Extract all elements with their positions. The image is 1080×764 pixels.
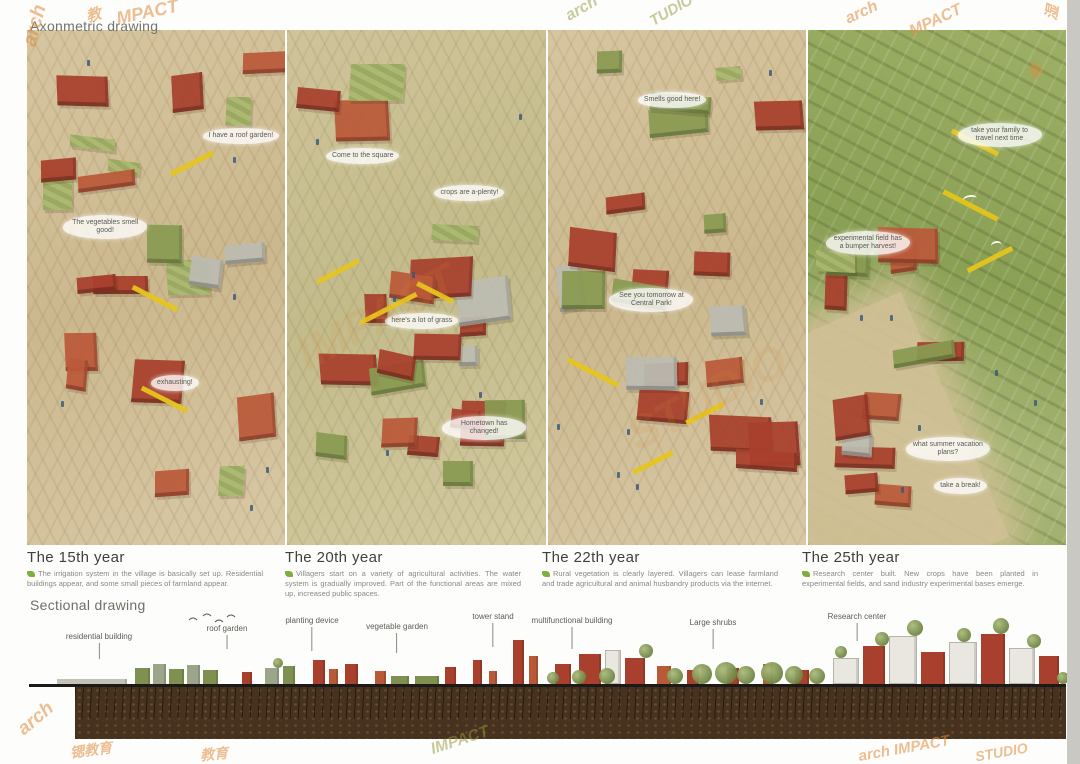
villager-figure	[557, 424, 560, 430]
section-label: tower stand	[472, 612, 513, 647]
panel-year-20: Come to the squarecrops are a-plenty!her…	[285, 30, 545, 545]
art-building-block	[188, 256, 223, 289]
section-tree	[785, 666, 803, 684]
section-building	[489, 671, 497, 684]
watermark-text: STUDIO	[974, 740, 1029, 764]
section-tree	[715, 662, 737, 684]
speech-bubble: exhausting!	[151, 375, 199, 391]
section-building	[169, 669, 184, 684]
section-building	[473, 660, 482, 684]
section-label: Research center	[828, 612, 887, 641]
watermark-text: arch	[843, 0, 881, 28]
art-building-block	[243, 51, 285, 74]
watermark-text: TUDIO	[647, 0, 696, 30]
section-tree	[599, 668, 615, 684]
villager-figure	[479, 392, 482, 398]
speech-bubble: experimental field has a bumper harvest!	[826, 231, 910, 255]
panel-year-22: Smells good here!See you tomorrow at Cen…	[546, 30, 806, 545]
caption-year-22-body: Rural vegetation is clearly layered. Vil…	[542, 569, 778, 589]
villager-figure	[860, 315, 863, 321]
section-label-text: tower stand	[472, 612, 513, 621]
art-building-block	[218, 466, 245, 496]
villager-figure	[995, 370, 998, 376]
panel-year-25-artwork	[808, 30, 1066, 545]
art-building-block	[561, 271, 605, 309]
caption-year-25: The 25th year Research center built. New…	[802, 549, 1038, 589]
speech-bubble: I have a roof garden!	[203, 128, 280, 144]
caption-year-20-body: Villagers start on a variety of agricult…	[285, 569, 521, 599]
section-tree	[572, 670, 586, 684]
caption-year-15-text: The irrigation system in the village is …	[27, 569, 263, 588]
villager-figure	[890, 315, 893, 321]
section-tree	[273, 658, 283, 668]
art-building-block	[892, 339, 955, 368]
art-building-block	[316, 433, 348, 461]
label-leader-line	[856, 623, 857, 641]
villager-figure	[87, 60, 90, 66]
section-tree	[1027, 634, 1041, 648]
section-label-text: vegetable garden	[366, 622, 428, 631]
art-building-block	[65, 357, 87, 391]
caption-year-25-body: Research center built. New crops have be…	[802, 569, 1038, 589]
leaf-icon	[802, 571, 810, 577]
section-tree	[993, 618, 1009, 634]
section-building	[283, 666, 295, 684]
caption-year-22: The 22th year Rural vegetation is clearl…	[542, 549, 778, 589]
section-building	[329, 669, 338, 684]
speech-bubble: See you tomorrow at Central Park!	[609, 288, 693, 312]
section-label: multifunctional building	[532, 616, 613, 649]
presentation-board: Axonmetric drawing I have a roof garden!…	[0, 0, 1080, 764]
caption-year-15-body: The irrigation system in the village is …	[27, 569, 263, 589]
caption-year-25-text: Research center built. New crops have be…	[802, 569, 1038, 588]
section-label-text: residential building	[66, 632, 132, 641]
label-leader-line	[396, 633, 397, 653]
art-building-block	[844, 472, 878, 494]
caption-year-20-text: Villagers start on a variety of agricult…	[285, 569, 521, 598]
art-building-block	[172, 72, 205, 113]
yellow-path-strip	[967, 246, 1014, 273]
villager-figure	[1034, 400, 1037, 406]
watermark-text: arch	[563, 0, 601, 25]
art-building-block	[155, 469, 189, 497]
villager-figure	[636, 484, 639, 490]
label-leader-line	[226, 635, 227, 649]
art-building-block	[693, 251, 730, 276]
sectional-drawing-title: Sectional drawing	[30, 597, 146, 613]
art-building-block	[459, 345, 479, 365]
art-building-block	[349, 64, 406, 101]
panel-year-20-artwork	[287, 30, 545, 545]
art-building-block	[703, 213, 726, 234]
art-building-block	[431, 224, 478, 242]
villager-figure	[901, 487, 904, 493]
speech-bubble: take your family to travel next time	[958, 123, 1042, 147]
caption-year-22-text: Rural vegetation is clearly layered. Vil…	[542, 569, 778, 588]
section-building	[313, 660, 325, 684]
section-tree	[907, 620, 923, 636]
art-building-block	[874, 484, 911, 508]
art-building-block	[381, 417, 418, 447]
section-building	[981, 634, 1005, 684]
section-building	[415, 676, 439, 684]
art-building-block	[736, 449, 797, 472]
section-building	[863, 646, 885, 684]
art-building-block	[56, 76, 108, 107]
scan-edge-strip	[1067, 0, 1080, 764]
art-building-block	[754, 100, 804, 130]
art-building-block	[833, 394, 871, 441]
panel-year-15: I have a roof garden!The vegetables smel…	[27, 30, 285, 545]
section-building	[889, 636, 917, 684]
section-label-text: roof garden	[207, 624, 248, 633]
villager-figure	[760, 399, 763, 405]
section-tree	[809, 668, 825, 684]
section-building	[513, 640, 524, 684]
section-building	[187, 665, 200, 684]
speech-bubble: Smells good here!	[638, 92, 706, 108]
art-building-block	[296, 87, 341, 112]
villager-figure	[519, 114, 522, 120]
art-building-block	[40, 157, 75, 182]
villager-figure	[386, 450, 389, 456]
caption-year-22-title: The 22th year	[542, 549, 778, 566]
art-building-block	[78, 169, 135, 193]
section-label-text: planting device	[285, 616, 338, 625]
label-leader-line	[492, 623, 493, 647]
art-building-block	[709, 306, 748, 337]
villager-figure	[918, 425, 921, 431]
caption-year-15: The 15th year The irrigation system in t…	[27, 549, 263, 589]
villager-figure	[627, 429, 630, 435]
villager-figure	[250, 505, 253, 511]
caption-year-25-title: The 25th year	[802, 549, 1038, 566]
leaf-icon	[285, 571, 293, 577]
art-building-block	[334, 99, 390, 141]
leaf-icon	[542, 571, 550, 577]
section-soil-roots	[75, 687, 1066, 739]
caption-year-20-title: The 20th year	[285, 549, 521, 566]
section-tree	[761, 662, 783, 684]
section-building	[921, 652, 945, 684]
section-building	[1009, 648, 1035, 684]
label-leader-line	[98, 643, 99, 659]
villager-figure	[393, 296, 396, 302]
section-building	[57, 679, 127, 684]
art-building-block	[413, 334, 461, 361]
seagull-icon	[962, 194, 977, 205]
section-building	[529, 656, 538, 684]
section-label: planting device	[285, 616, 338, 651]
caption-year-15-title: The 15th year	[27, 549, 263, 566]
section-building	[391, 676, 409, 684]
section-building	[345, 664, 358, 684]
section-building	[1039, 656, 1059, 684]
section-building	[833, 658, 859, 684]
speech-bubble: what summer vacation plans?	[906, 437, 990, 461]
yellow-path-strip	[316, 259, 359, 284]
section-building	[242, 672, 252, 684]
axonometric-panel-row: I have a roof garden!The vegetables smel…	[27, 30, 1066, 545]
villager-figure	[617, 472, 620, 478]
art-building-block	[636, 388, 689, 424]
art-building-block	[225, 97, 251, 126]
section-tree	[692, 664, 712, 684]
section-tree	[835, 646, 847, 658]
villager-figure	[412, 272, 415, 278]
section-tree	[667, 668, 683, 684]
section-label-text: multifunctional building	[532, 616, 613, 625]
section-building	[203, 670, 218, 684]
section-tree	[737, 666, 755, 684]
seagull-icon	[991, 240, 1003, 250]
art-building-block	[70, 134, 115, 151]
section-label-text: Large shrubs	[690, 618, 737, 627]
sectional-drawing-strip: residential buildingroof gardenplanting …	[27, 610, 1066, 742]
section-building	[135, 668, 150, 684]
label-leader-line	[572, 627, 573, 649]
art-building-block	[625, 357, 677, 390]
section-label: vegetable garden	[366, 622, 428, 653]
art-building-block	[716, 66, 742, 81]
art-building-block	[443, 460, 473, 485]
villager-figure	[233, 294, 236, 300]
villager-figure	[266, 467, 269, 473]
art-building-block	[237, 392, 276, 441]
art-building-block	[824, 274, 847, 311]
villager-figure	[316, 139, 319, 145]
speech-bubble: crops are a-plenty!	[434, 185, 504, 201]
panel-year-25: take your family to travel next timeexpe…	[806, 30, 1066, 545]
section-label: Large shrubs	[690, 618, 737, 649]
panel-year-15-artwork	[27, 30, 285, 545]
art-building-block	[569, 226, 618, 271]
section-tree	[547, 672, 559, 684]
leaf-icon	[27, 571, 35, 577]
speech-bubble: take a break!	[934, 478, 986, 494]
section-label-text: Research center	[828, 612, 887, 621]
yellow-path-strip	[632, 450, 673, 474]
villager-figure	[233, 157, 236, 163]
art-building-block	[224, 242, 265, 264]
axonometric-drawing-title: Axonmetric drawing	[30, 18, 158, 34]
section-building	[445, 667, 456, 684]
watermark-text: 湿	[1040, 3, 1063, 21]
label-leader-line	[712, 629, 713, 649]
section-label: residential building	[66, 632, 132, 659]
section-tree	[957, 628, 971, 642]
yellow-path-strip	[567, 358, 619, 388]
yellow-path-strip	[170, 150, 215, 176]
section-building	[265, 668, 279, 684]
section-label: roof garden	[207, 624, 248, 649]
art-building-block	[605, 193, 645, 215]
villager-figure	[61, 401, 64, 407]
art-building-block	[147, 225, 182, 264]
label-leader-line	[312, 627, 313, 651]
section-building	[375, 671, 386, 684]
section-tree	[639, 644, 653, 658]
watermark-text: 教育	[199, 743, 229, 764]
villager-figure	[769, 70, 772, 76]
yellow-path-strip	[942, 189, 999, 221]
section-building	[153, 664, 166, 684]
section-building	[949, 642, 977, 684]
art-building-block	[597, 50, 622, 73]
art-building-block	[705, 357, 744, 388]
caption-year-20: The 20th year Villagers start on a varie…	[285, 549, 521, 599]
section-building	[625, 658, 645, 684]
